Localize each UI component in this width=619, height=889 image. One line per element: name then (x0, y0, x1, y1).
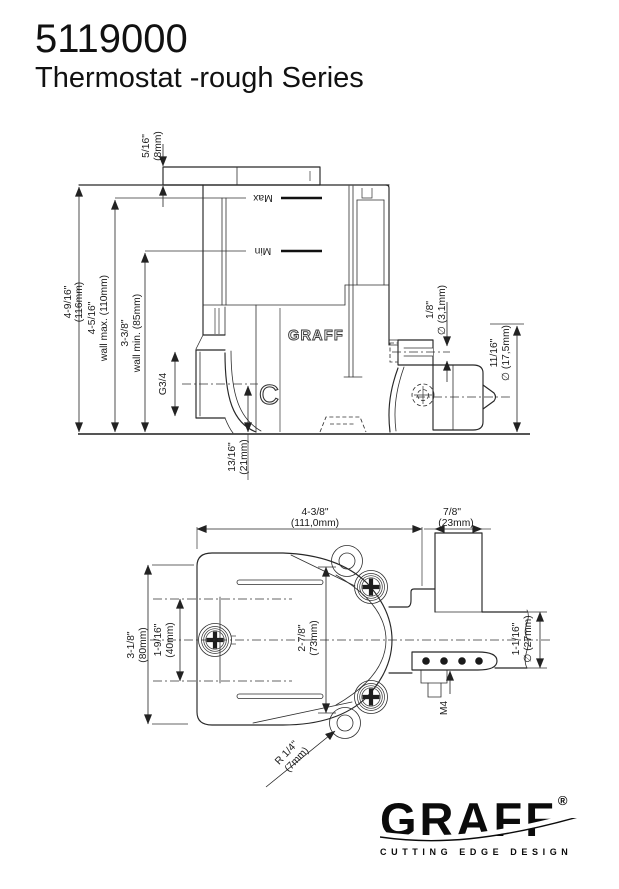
label-min: Min (254, 245, 271, 256)
dim-cartridge-dia-inch: 11/16" (489, 338, 500, 367)
valve-cap (163, 167, 320, 185)
dim-wall-min-inch: 3-3/8" (120, 319, 131, 346)
dim-pipe-dia-mm: ∅ (27mm) (523, 615, 534, 662)
fixing-screw-bottom (355, 681, 388, 714)
dim-port-spacing-mm: (40mm) (165, 622, 176, 657)
dim-pipe-depth-mm: (23mm) (438, 518, 473, 529)
dim-outlet-offset-mm: (21mm) (239, 439, 250, 474)
brand-logo: GRAFF® (380, 796, 604, 843)
footer-brand-block: GRAFF® CUTTING EDGE DESIGN (380, 796, 604, 857)
dim-screw-spacing-inch: 2-7/8" (297, 624, 308, 651)
brand-tagline: CUTTING EDGE DESIGN (380, 847, 604, 857)
outlet-dashed-boss (320, 417, 366, 432)
dim-outlet-offset-inch: 13/16" (227, 442, 238, 472)
dim-thread-label: M4 (439, 701, 450, 716)
outlet-pipe-assembly (389, 533, 528, 697)
dim-ear-radius-group: R 1/4" (7mm) (273, 737, 311, 775)
dim-overall-mm: (116mm) (74, 282, 85, 322)
dim-cartridge-dia-mm: ∅ (17,5mm) (501, 325, 512, 381)
body-engraved-logo: GRAFF (288, 328, 344, 344)
mounting-ear-top (332, 546, 363, 577)
dim-pipe-dia-inch: 1-1/16" (511, 622, 522, 655)
dim-pipe-depth-inch: 7/8" (443, 507, 461, 518)
dim-port-thread: G3/4 (158, 373, 169, 396)
dim-body-height-mm: (80mm) (138, 627, 149, 662)
dim-cap-inch: 5/16" (141, 134, 152, 158)
spec-sheet-page: 5119000 Thermostat -rough Series (0, 0, 619, 889)
label-max: Max (252, 192, 272, 203)
dim-screw-bore-inch: 1/8" (425, 301, 436, 319)
fixing-screw-top (355, 571, 388, 604)
technical-drawing-canvas: 4-9/16" (116mm) 4-5/16" wall max. (110mm… (0, 0, 619, 889)
dim-wall-max-mm: wall max. (110mm) (99, 275, 110, 362)
plan-view-drawing: 4-3/8" (111,0mm) 7/8" (23mm) 3-1/8" (80m… (126, 507, 552, 787)
dim-body-width-inch: 4-3/8" (301, 507, 328, 518)
dim-screw-spacing-mm: (73mm) (309, 620, 320, 655)
inlet-port-g34 (182, 350, 258, 433)
dim-port-spacing-inch: 1-9/16" (153, 623, 164, 656)
body-c-mark: C (259, 379, 279, 410)
brand-logo-text: GRAFF (380, 793, 557, 846)
dim-cap-mm: (8mm) (153, 131, 164, 161)
plan-view-dimensions (148, 527, 547, 787)
dim-screw-bore-mm: ∅ (3,1mm) (437, 285, 448, 335)
dim-wall-max-inch: 4-5/16" (87, 301, 98, 334)
registered-mark: ® (558, 793, 571, 808)
cartridge-cylinder (412, 365, 513, 430)
side-view-drawing: 4-9/16" (116mm) 4-5/16" wall max. (110mm… (63, 131, 530, 480)
dim-body-height-inch: 3-1/8" (126, 631, 137, 658)
dim-body-width-mm: (111,0mm) (291, 518, 339, 529)
side-screw-boss (389, 340, 450, 365)
valve-body-outline (196, 185, 404, 432)
dim-wall-min-mm: wall min. (85mm) (132, 294, 143, 373)
dim-overall-inch: 4-9/16" (63, 285, 74, 318)
